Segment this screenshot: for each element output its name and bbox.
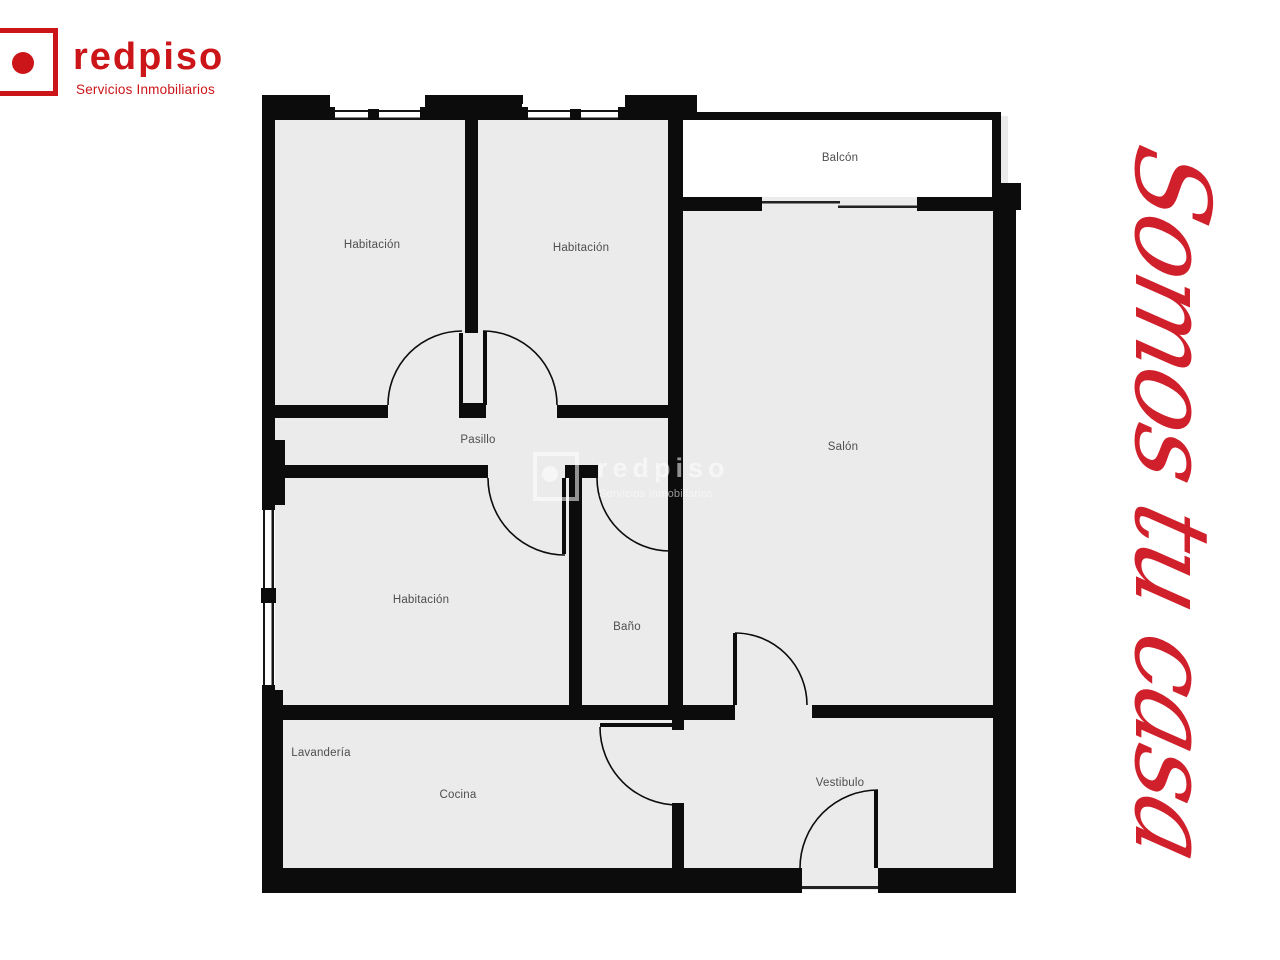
room-label-cocina: Cocina	[440, 789, 477, 801]
door-leaf-salon	[733, 633, 737, 705]
door-leaf-entrance	[874, 790, 878, 868]
room-label-balcon: Balcón	[822, 152, 858, 164]
room-label-habitacion-1: Habitación	[344, 239, 400, 251]
room-label-vestibulo: Vestibulo	[816, 777, 864, 789]
floorplan-drawing	[0, 0, 1280, 960]
window-top-mid-icon	[522, 104, 625, 120]
room-label-habitacion-3: Habitación	[393, 594, 449, 606]
window-top-left-icon	[330, 104, 425, 120]
apartment-floor	[268, 116, 1008, 890]
room-label-bano: Baño	[613, 621, 641, 633]
entrance-threshold	[802, 886, 878, 889]
slogan-script: Somos tu casa	[1112, 135, 1232, 865]
room-label-lavanderia: Lavandería	[291, 747, 351, 759]
door-leaf-habitacion-2	[483, 331, 487, 405]
window-west-icon	[261, 505, 276, 690]
door-leaf-habitacion-1	[459, 333, 463, 405]
room-label-salon: Salón	[828, 441, 858, 453]
room-label-pasillo: Pasillo	[460, 434, 495, 446]
floorplan-page: { "brand": { "wordmark": "redpiso", "tag…	[0, 0, 1280, 960]
door-leaf-cocina	[600, 723, 678, 727]
room-label-habitacion-2: Habitación	[553, 242, 609, 254]
door-leaf-habitacion-3	[562, 478, 566, 554]
